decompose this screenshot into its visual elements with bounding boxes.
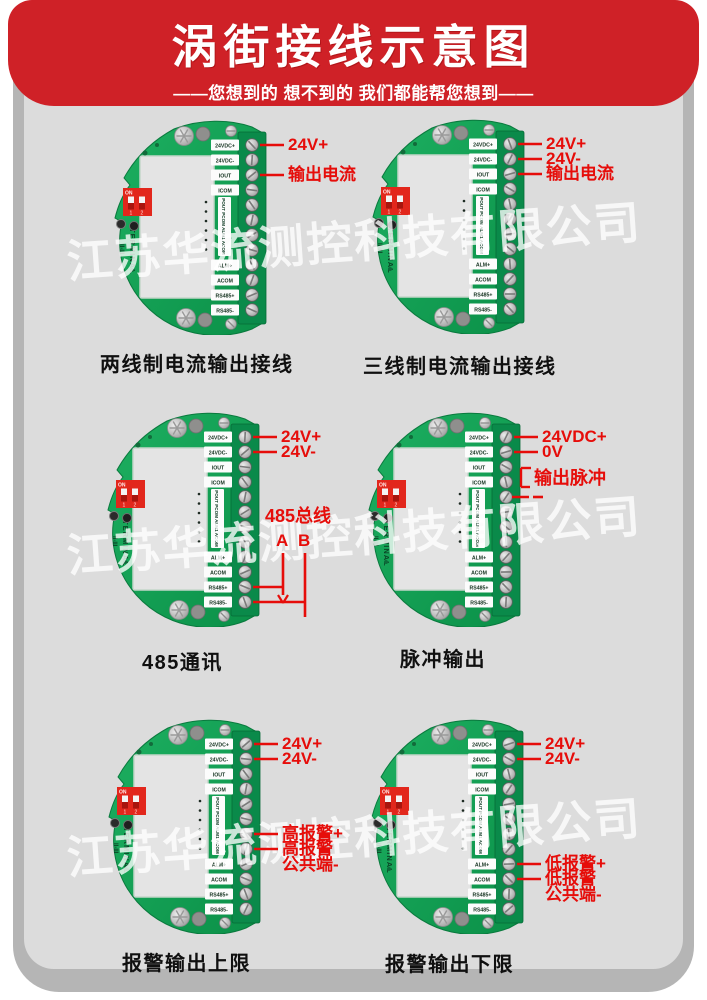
terminal-label: ICOM xyxy=(475,787,489,793)
dip-slider-2 xyxy=(396,796,402,803)
page-subtitle: ——您想到的 想不到的 我们都能帮您想到—— xyxy=(8,79,699,104)
annotation-label: 输出电流 xyxy=(546,165,614,183)
dip-switch: ON 1 2 xyxy=(116,480,145,509)
dip-slider-2 xyxy=(132,489,138,496)
terminal-label: IOUT xyxy=(213,772,226,778)
terminal-label: 24VDC- xyxy=(470,450,489,456)
terminal-side-label: POUT PCOM ALM1 ACOM xyxy=(479,197,484,254)
terminal-label: ACOM xyxy=(210,570,226,576)
terminal-side-label: POUT PCOM ALM1 ACOM xyxy=(475,490,480,547)
terminal-label: ICOM xyxy=(212,787,226,793)
terminal-label: ALM+ xyxy=(476,262,490,268)
terminal-side-label: POUT PCOM ALM1 ACOM xyxy=(478,797,483,854)
header-banner: 涡街接线示意图 ——您想到的 想不到的 我们都能帮您想到—— xyxy=(8,0,699,106)
board-caption: 两线制电流输出接线 xyxy=(100,348,294,377)
model-silkscreen-text: II-III xyxy=(112,843,118,854)
display-window xyxy=(397,755,471,897)
terminal-silkscreen-text: TERMINAL xyxy=(121,520,130,567)
terminal-silkscreen-text: TERMINAL xyxy=(386,227,395,274)
pcb-board: 24VDC+24VDC-IOUTICOMALM+ACOMRS485+RS485-… xyxy=(106,719,281,934)
pcb-board: 24VDC+24VDC-IOUTICOMALM+ACOMRS485+RS485-… xyxy=(369,719,544,934)
page-title: 涡街接线示意图 xyxy=(8,0,699,77)
terminal-label: ACOM xyxy=(475,277,491,283)
terminal-label: ICOM xyxy=(211,480,225,486)
dip-position-1: 1 xyxy=(124,810,127,816)
page: 涡街接线示意图 ——您想到的 想不到的 我们都能帮您想到—— 江苏华流测控科技有… xyxy=(0,0,707,1000)
terminal-label: ACOM xyxy=(474,877,490,883)
terminal-label: ALM+ xyxy=(218,263,232,269)
dip-on-label: ON xyxy=(119,790,127,796)
board-caption: 报警输出下限 xyxy=(385,948,514,977)
model-silkscreen-text: II-III xyxy=(118,244,124,255)
terminal-label: RS485- xyxy=(470,600,488,606)
board-caption: 三线制电流输出接线 xyxy=(363,350,557,379)
dip-on-label: ON xyxy=(118,483,126,489)
dip-position-1: 1 xyxy=(130,211,133,217)
terminal-label: RS485+ xyxy=(216,293,235,299)
terminal-label: 24VDC+ xyxy=(209,742,229,748)
terminal-label: IOUT xyxy=(477,172,490,178)
pcb-board: 24VDC+24VDC-IOUTICOMALM+ACOMRS485+RS485-… xyxy=(370,119,545,334)
model-silkscreen-text: II-III xyxy=(376,243,382,254)
terminal-label: RS485+ xyxy=(470,585,489,591)
terminal-label: ALM+ xyxy=(475,862,489,868)
terminal-label: ALM+ xyxy=(211,555,225,561)
dip-slider-2 xyxy=(139,197,145,204)
annotation-label: 24V+ xyxy=(288,136,328,154)
pcb-board: 24VDC+24VDC-IOUTICOMALM+ACOMRS485+RS485-… xyxy=(105,412,280,627)
dip-position-1: 1 xyxy=(388,210,391,216)
dip-on-label: ON xyxy=(383,190,391,196)
terminal-label: 24VDC- xyxy=(216,158,235,164)
terminal-label: ICOM xyxy=(472,480,486,486)
dip-switch: ON 1 2 xyxy=(117,787,146,816)
dip-position-2: 2 xyxy=(135,810,138,816)
dip-slider-1 xyxy=(382,489,388,496)
terminal-silkscreen-text: TERMINAL xyxy=(385,827,394,874)
terminal-label: ICOM xyxy=(218,188,232,194)
annotation-label: 输出脉冲 xyxy=(534,469,606,488)
terminal-side-label: POUT PCOM ALM1 ACOM xyxy=(214,490,219,547)
dip-slider-1 xyxy=(386,196,392,203)
terminal-label: 24VDC+ xyxy=(469,435,489,441)
model-silkscreen-text: II-III xyxy=(375,843,381,854)
terminal-label: RS485- xyxy=(474,307,492,313)
board-caption: 485通讯 xyxy=(142,646,223,675)
board-caption: 报警输出上限 xyxy=(122,947,251,976)
pcb-board: 24VDC+24VDC-IOUTICOMALM+ACOMRS485+RS485-… xyxy=(366,412,541,627)
terminal-label: IOUT xyxy=(476,772,489,778)
dip-position-2: 2 xyxy=(398,810,401,816)
dip-slider-1 xyxy=(128,197,134,204)
dip-slider-2 xyxy=(133,796,139,803)
terminal-label: RS485+ xyxy=(474,292,493,298)
pcb-board: 24VDC+24VDC-IOUTICOMALM+ACOMRS485+RS485-… xyxy=(112,120,287,335)
terminal-label: 24VDC- xyxy=(473,757,492,763)
terminal-label: ALM+ xyxy=(212,862,226,868)
terminal-label: ALM+ xyxy=(472,555,486,561)
dip-slider-1 xyxy=(122,796,128,803)
dip-on-label: ON xyxy=(379,483,387,489)
terminal-label: ICOM xyxy=(476,187,490,193)
terminal-label: ACOM xyxy=(217,278,233,284)
display-window xyxy=(134,755,208,897)
terminal-side-label: POUT PCOM ALM1 ACOM xyxy=(221,198,226,255)
terminal-label: RS485+ xyxy=(473,892,492,898)
terminal-label: 24VDC+ xyxy=(473,142,493,148)
model-silkscreen-text: II-III xyxy=(111,536,117,547)
annotation-label: 24V- xyxy=(281,443,316,461)
annotation-label: 485总线 xyxy=(265,507,331,526)
terminal-label: RS485+ xyxy=(209,585,228,591)
terminal-silkscreen-text: TERMINAL xyxy=(128,228,137,275)
annotation-label: B xyxy=(298,532,310,550)
annotation-label: 公共端- xyxy=(545,886,602,904)
display-window xyxy=(398,155,472,297)
dip-switch: ON 1 2 xyxy=(377,480,406,509)
terminal-label: RS485- xyxy=(473,907,491,913)
dip-position-1: 1 xyxy=(384,503,387,509)
dip-position-1: 1 xyxy=(387,810,390,816)
annotation-label: 公共端- xyxy=(282,856,339,874)
terminal-label: IOUT xyxy=(212,465,225,471)
dip-on-label: ON xyxy=(382,790,390,796)
terminal-label: ACOM xyxy=(471,570,487,576)
terminal-label: ACOM xyxy=(211,877,227,883)
terminal-label: 24VDC+ xyxy=(215,143,235,149)
dip-slider-1 xyxy=(121,489,127,496)
terminal-label: 24VDC- xyxy=(474,157,493,163)
annotation-label: 24V- xyxy=(545,750,580,768)
display-window xyxy=(140,156,214,298)
terminal-label: 24VDC- xyxy=(210,757,229,763)
dip-position-2: 2 xyxy=(399,210,402,216)
terminal-label: IOUT xyxy=(473,465,486,471)
dip-switch: ON 1 2 xyxy=(381,187,410,216)
dip-slider-2 xyxy=(397,196,403,203)
terminal-label: RS485+ xyxy=(210,892,229,898)
terminal-label: RS485- xyxy=(210,907,228,913)
dip-on-label: ON xyxy=(125,191,133,197)
dip-slider-2 xyxy=(393,489,399,496)
annotation-label: A xyxy=(276,532,288,550)
terminal-silkscreen-text: TERMINAL xyxy=(122,827,131,874)
terminal-label: RS485- xyxy=(216,308,234,314)
annotation-label: 输出电流 xyxy=(288,166,356,184)
terminal-label: 24VDC+ xyxy=(472,742,492,748)
terminal-side-label: POUT PCOM ALM1 ACOM xyxy=(215,797,220,854)
dip-position-2: 2 xyxy=(141,211,144,217)
board-caption: 脉冲输出 xyxy=(400,643,486,672)
dip-position-1: 1 xyxy=(123,503,126,509)
dip-position-2: 2 xyxy=(134,503,137,509)
model-silkscreen-text: II-III xyxy=(372,536,378,547)
dip-switch: ON 1 2 xyxy=(380,787,409,816)
display-window xyxy=(394,448,468,590)
terminal-label: RS485- xyxy=(209,600,227,606)
terminal-silkscreen-text: TERMINAL xyxy=(382,520,391,567)
dip-position-2: 2 xyxy=(395,503,398,509)
annotation-label: 24V- xyxy=(282,750,317,768)
dip-slider-1 xyxy=(385,796,391,803)
terminal-label: 24VDC- xyxy=(209,450,228,456)
annotation-label: 0V xyxy=(542,443,563,461)
terminal-label: 24VDC+ xyxy=(208,435,228,441)
dip-switch: ON 1 2 xyxy=(123,188,152,217)
display-window xyxy=(133,448,207,590)
terminal-label: IOUT xyxy=(219,173,232,179)
